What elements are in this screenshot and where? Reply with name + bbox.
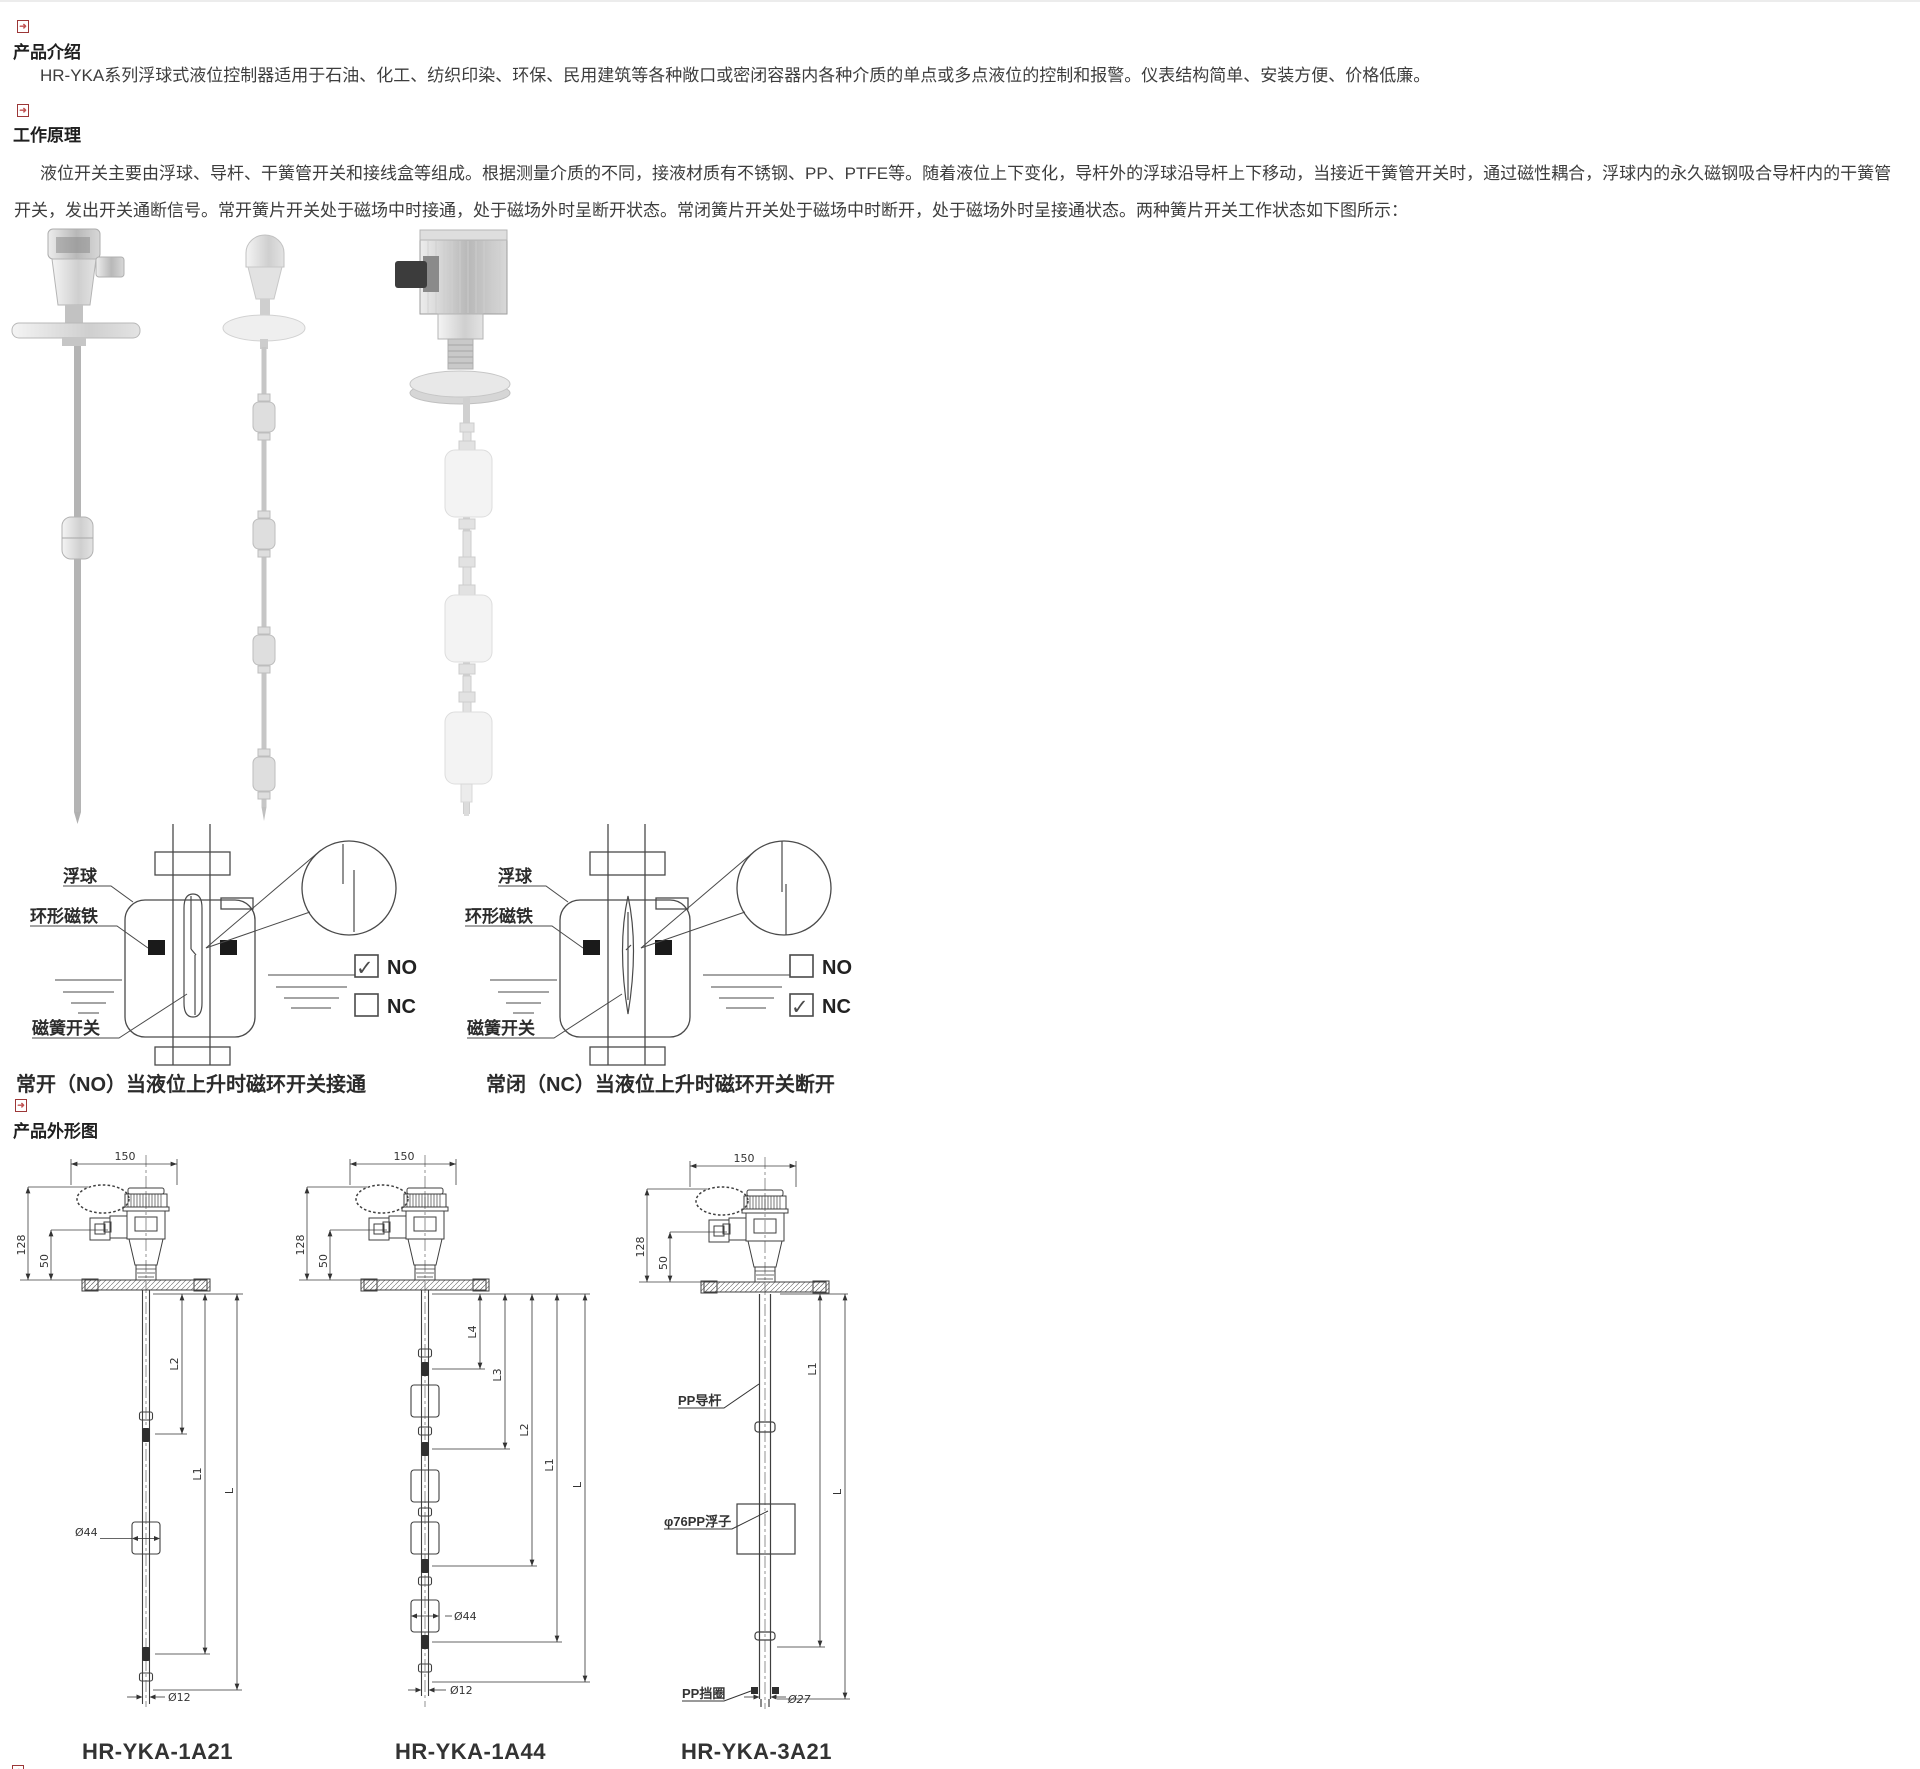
dim-128: 128 — [15, 1235, 28, 1256]
dim-d44: Ø44 — [75, 1526, 98, 1539]
dim-l2: L2 — [168, 1357, 181, 1370]
nc-label: NC — [387, 996, 416, 1018]
nc-checkbox-mark: ✓ — [791, 996, 809, 1019]
product-photo-exproof-pp-floats — [390, 227, 520, 832]
diagram-nc-caption: 常闭（NC）当液位上升时磁环开关断开 — [486, 1068, 835, 1097]
no-label: NO — [822, 957, 852, 979]
nc-label: NC — [822, 996, 851, 1018]
dim-150: 150 — [115, 1150, 136, 1163]
no-label: NO — [387, 957, 417, 979]
dim-d27: Ø27 — [787, 1693, 811, 1706]
principle-heading: 工作原理 — [13, 121, 81, 146]
dim-150: 150 — [734, 1152, 755, 1165]
product-doc-page: ➜ ➜ ➜ ➜ 产品介绍 HR-YKA系列浮球式液位控制器适用于石油、化工、纺织… — [0, 0, 1920, 1769]
outline-drawing-3a21: 150 128 50 L1 L PP导杆 φ76PP浮子 PP挡圈 Ø27 — [620, 1147, 890, 1717]
dim-l1: L1 — [191, 1467, 204, 1480]
outline-drawing-1a44: 150 128 50 L4 L3 L2 L1 L Ø44 Ø12 — [280, 1147, 600, 1717]
reed-switch-label: 磁簧开关 — [467, 1018, 535, 1038]
reed-switch-closed — [623, 841, 787, 1014]
pp-rod-label: PP导杆 — [678, 1393, 721, 1408]
model-name-3a21: HR-YKA-3A21 — [681, 1739, 832, 1765]
pp-ring-label: PP挡圈 — [682, 1686, 725, 1701]
product-photo-multi-float-rod — [210, 227, 320, 837]
model-name-1a21: HR-YKA-1A21 — [82, 1739, 233, 1765]
section-bullet-icon: ➜ — [17, 20, 29, 33]
section-bullet-icon: ➜ — [17, 104, 29, 117]
dim-l1: L1 — [806, 1362, 819, 1375]
section-bullet-icon: ➜ — [12, 1765, 24, 1769]
dim-50: 50 — [38, 1254, 51, 1268]
dim-d44: Ø44 — [454, 1610, 477, 1623]
dim-l1: L1 — [543, 1458, 556, 1471]
product-photo-flanged-single-float — [10, 227, 160, 827]
dim-150: 150 — [394, 1150, 415, 1163]
reed-switch-label: 磁簧开关 — [32, 1018, 100, 1038]
ring-magnet-label: 环形磁铁 — [465, 906, 533, 926]
dim-l: L — [571, 1481, 584, 1488]
pp-float-label: φ76PP浮子 — [664, 1514, 731, 1529]
outline-heading: 产品外形图 — [13, 1117, 98, 1142]
dim-128: 128 — [634, 1237, 647, 1258]
outline-drawing-1a21: 150 128 50 L2 L1 L Ø44 Ø12 — [15, 1147, 255, 1717]
dim-50: 50 — [657, 1256, 670, 1270]
dim-d12: Ø12 — [168, 1691, 191, 1704]
float-ball-label: 浮球 — [63, 866, 98, 886]
dim-l4: L4 — [466, 1325, 479, 1338]
dim-50: 50 — [317, 1254, 330, 1268]
dim-128: 128 — [294, 1235, 307, 1256]
float-ball-label: 浮球 — [498, 866, 533, 886]
principle-paragraph: 液位开关主要由浮球、导杆、干簧管开关和接线盒等组成。根据测量介质的不同，接液材质… — [14, 155, 1906, 229]
no-checkbox-mark: ✓ — [356, 957, 374, 980]
dim-l2: L2 — [518, 1423, 531, 1436]
diagram-no-caption: 常开（NO）当液位上升时磁环开关接通 — [16, 1068, 366, 1097]
section-bullet-icon: ➜ — [15, 1099, 27, 1112]
principle-diagram-nc: 浮球 环形磁铁 磁簧开关 ✓ NO NC — [460, 822, 885, 1067]
dim-d12: Ø12 — [450, 1684, 473, 1697]
principle-diagram-no: 浮球 环形磁铁 磁簧开关 ✓ NO NC — [25, 822, 450, 1067]
ring-magnet-label: 环形磁铁 — [30, 906, 98, 926]
dim-l: L — [223, 1487, 236, 1494]
model-name-1a44: HR-YKA-1A44 — [395, 1739, 546, 1765]
dim-l3: L3 — [491, 1368, 504, 1381]
dim-l: L — [831, 1488, 844, 1495]
intro-paragraph: HR-YKA系列浮球式液位控制器适用于石油、化工、纺织印染、环保、民用建筑等各种… — [14, 57, 1904, 94]
